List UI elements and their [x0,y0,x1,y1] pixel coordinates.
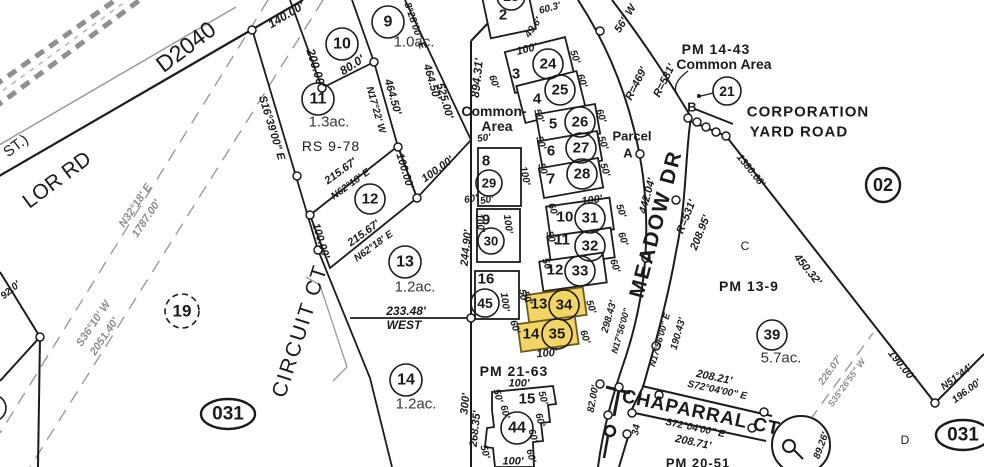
parcel-number: 29 [482,176,496,191]
map-name-label: PM 21-63 [480,364,549,378]
map-name-label: B [687,101,696,114]
parcel-number: 25 [552,82,569,99]
parcel-number: 35 [549,326,566,343]
dimension-label: 34 [631,424,643,437]
parcel-number: 45 [477,295,493,311]
parcel-number: 14 [397,372,415,389]
map-name-label: YARD ROAD [750,125,848,140]
map-name-label: PM 14-43 [682,42,751,56]
map-name-label: 2 [499,8,507,23]
cul-de-sac-monument-icon [783,440,795,452]
map-name-label: 15 [519,392,536,407]
acreage-label: 1.3ac. [309,115,350,130]
map-name-label: PM 13-9 [719,279,779,293]
dimension-label: 50' [535,390,548,406]
map-name-label: 8 [482,154,490,169]
parcel-number: 19 [173,302,192,321]
map-name-label: 3 [512,67,520,82]
parcel-number: 32 [582,238,599,255]
parcel-number: 11 [310,91,327,108]
railroad-centerline [0,0,136,97]
dimension-label: 50' [477,444,490,460]
book-number: 031 [947,425,979,446]
railroad-track [0,0,124,86]
parcel-number: 33 [572,263,589,280]
map-name-label: D [901,434,910,446]
dimension-label: 100' [503,457,524,467]
parcel-number: 27 [573,140,590,157]
dimension-label: 100' [536,348,558,361]
map-name-label: 16 [478,272,495,287]
map-name-label: Common Area [676,57,771,71]
map-name-label: 14 [523,327,540,342]
parcel-map-canvas: 9101112131419212324252627282930313233343… [0,0,984,467]
parcel-number: 02 [873,175,893,195]
parcel-number: 24 [540,56,557,73]
parcel-number: 10 [333,36,351,53]
dimension-label: 100' [501,214,514,234]
map-name-label: Common- [461,104,526,118]
taylor-rd-edge [0,0,303,179]
book-number: 031 [212,404,244,425]
dimension-label: 100' [509,379,530,390]
map-name-label: RS 9-78 [302,139,360,153]
leader-dot [697,94,701,98]
dimension-label: 100' [498,292,511,312]
dimension-label: 50' [477,133,492,145]
map-name-label: C [741,240,750,252]
dimension-label: 60' [523,448,536,464]
acreage-label: 5.7ac. [761,351,802,366]
parcel-number: 23 [503,0,519,4]
map-name-label: A [623,147,632,160]
parcel-number: 34 [556,297,573,314]
parcel-number: 30 [484,234,498,249]
dimension-label: 60' [497,404,510,420]
parcel-number: 9 [384,14,393,31]
acreage-label: 1.2ac. [395,280,436,295]
parcel-number: 13 [396,254,414,271]
map-name-label: Area [481,119,512,133]
parcel-circle-partial[interactable] [0,395,6,421]
dimension-label: 60' [532,412,545,428]
parcel-number: 31 [582,210,599,227]
common-area-leader [675,71,688,96]
map-name-label: CORPORATION [747,105,869,120]
dimension-label: 100' [473,213,486,233]
dimension-label: 50' [516,289,528,304]
dimension-label: 233.48' [386,305,426,317]
acreage-label: 1.2ac. [396,397,437,412]
parcel-number: 44 [508,420,526,437]
map-name-label: 13 [531,297,548,312]
parcel-21-leader [701,93,713,96]
map-name-label: PM 20-51 [666,457,730,467]
parcel-number: 26 [572,114,589,131]
map-name-label: Parcel [612,130,651,143]
parcel-number: 39 [764,327,781,344]
map-name-label: 4 [533,92,541,107]
boundary-line [318,250,392,467]
dimension-label: 60' [525,428,538,444]
railroad-track [0,0,148,108]
parcel-number: 21 [719,83,735,99]
dimension-label: WEST [387,319,422,331]
parcel-number: 28 [574,166,591,183]
dimension-label: 50' [490,388,503,404]
map-name-label: 6 [547,144,555,159]
parcel-number: 12 [362,191,379,208]
map-name-label: 5 [549,117,557,132]
